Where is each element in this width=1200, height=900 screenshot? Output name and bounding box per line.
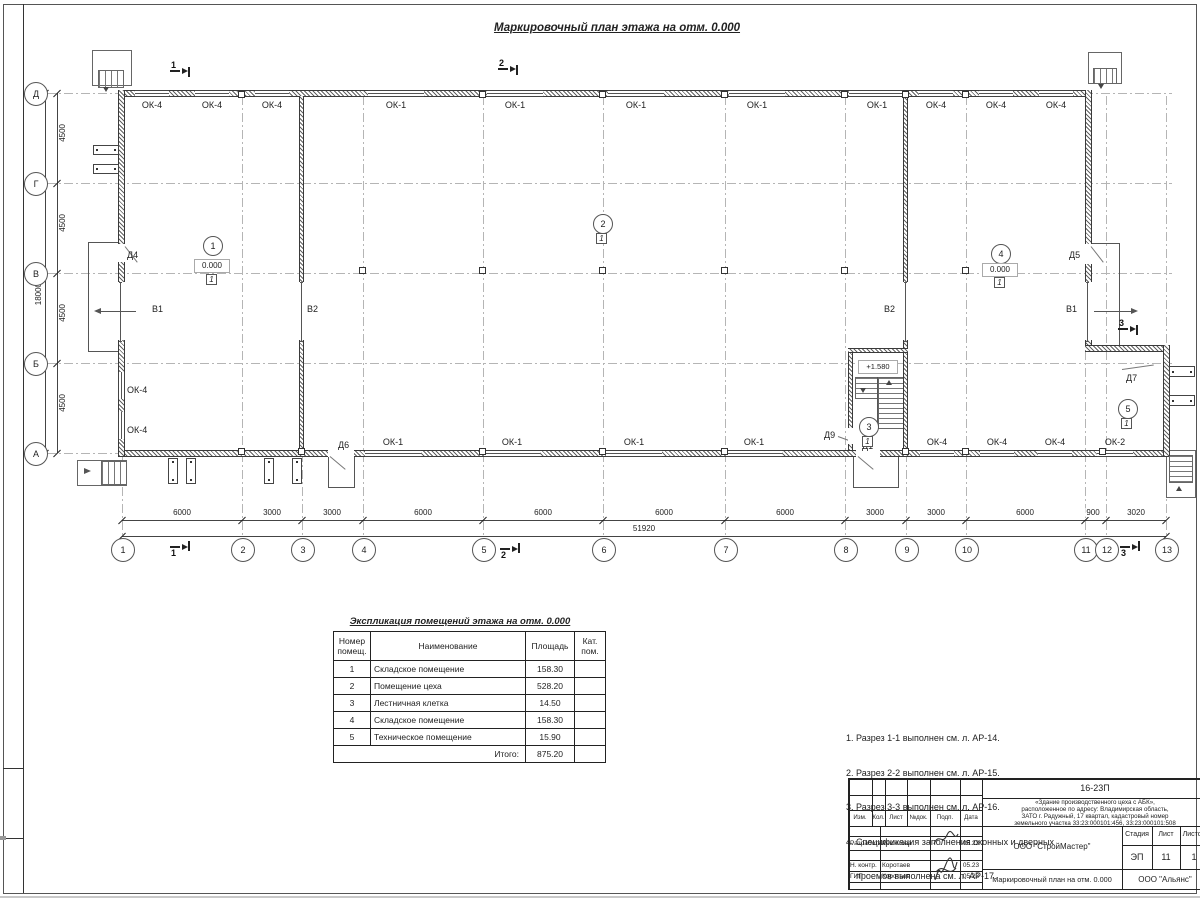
total-label: Итого: [334,746,526,763]
door-label: Д4 [127,250,138,260]
room-number-bubble: 4 [991,244,1011,264]
floor-type-box: 1 [1121,418,1132,429]
dimension: 4500 [58,304,67,322]
grid-line [603,96,604,538]
cell-category [575,712,606,729]
grid-line [47,183,1172,184]
door-label: Д9 [824,430,835,440]
window-label: ОК-2 [1105,437,1125,447]
column-marker [479,91,486,98]
dimension: 3000 [926,508,946,517]
room-number-bubble: 3 [859,417,879,437]
window-label: ОК-4 [262,100,282,110]
note-line: 1. Разрез 1-1 выполнен см. л. АР-14. [846,733,1054,745]
window-label: ОК-1 [747,100,767,110]
window [919,90,953,97]
column-marker [479,267,486,274]
axis-row-bubble: Д [24,82,48,106]
column-marker [479,448,486,455]
window [1039,90,1073,97]
cell-category [575,661,606,678]
signature [932,856,960,886]
cell-name: Лестничная клетка [371,695,526,712]
sheets-value: 1 [1180,852,1200,862]
dimension: 6000 [1015,508,1035,517]
column-marker [298,448,305,455]
total-value: 875.20 [526,746,575,763]
gate-leaf [300,282,303,342]
cell-area: 158.30 [526,661,575,678]
contractor-name: ООО "Альянс" [1122,875,1200,884]
room-elevation: 0.000 [194,259,230,273]
cell-area: 158.30 [526,712,575,729]
axis-col-bubble: 9 [895,538,919,562]
dimension: 3020 [1126,508,1146,517]
sheets-label: Листов [1180,831,1200,838]
tb-header-cell: Кол. [872,814,885,821]
door-opening [328,450,354,457]
tb-header-cell: Подп. [930,814,960,821]
cell-category [575,678,606,695]
axis-col-bubble: 6 [592,538,616,562]
doc-number: 16-23П [982,783,1200,793]
frame-tick [3,768,23,769]
window [849,90,903,97]
grid-line [725,96,726,538]
cell-category [575,746,606,763]
axis-col-bubble: 13 [1155,538,1179,562]
role-label: ГИП [850,873,863,880]
window [118,372,125,399]
window [487,90,543,97]
floor-type-box: 1 [994,277,1005,288]
gate-label: В1 [1066,304,1077,314]
window-label: ОК-1 [744,437,764,447]
project-desc-line: «Здание производственного цеха с АБК», [982,799,1200,806]
schedule-title: Экспликация помещений этажа на отм. 0.00… [333,616,587,627]
tb-header-cell: Дата [960,814,982,821]
stage-label: Стадия [1122,831,1152,838]
grid-line [242,96,243,538]
window-label: ОК-4 [987,437,1007,447]
column-marker [962,91,969,98]
axis-col-bubble: 5 [472,538,496,562]
interior-wall [299,96,304,450]
gate-direction-arrow [100,311,136,312]
axis-row-bubble: А [24,442,48,466]
table-row: 1Складское помещение158.30 [334,661,606,678]
column-marker [841,91,848,98]
dimension: 6000 [654,508,674,517]
axis-row-bubble: Г [24,172,48,196]
axis-row-bubble: Б [24,352,48,376]
window-label: ОК-1 [624,437,644,447]
stair-treads [1169,455,1193,483]
person-name: Коротаев [882,873,910,880]
wall [118,90,125,456]
schedule-table: Номер помещ. Наименование Площадь Кат. п… [333,631,606,763]
gate-leaf [904,282,907,342]
grid-line [845,96,846,538]
window-label: ОК-4 [127,425,147,435]
cell-area: 528.20 [526,678,575,695]
wall-bumper [1169,395,1195,406]
date-value: 05.23 [960,873,982,880]
column-marker [599,91,606,98]
cell-number: 5 [334,729,371,746]
stair-arrow-icon [84,468,91,474]
table-row: 2Помещение цеха528.20 [334,678,606,695]
window [606,450,662,457]
frame-tick [3,838,23,839]
dimension: 3000 [262,508,282,517]
window-label: ОК-4 [927,437,947,447]
column-marker [599,448,606,455]
section-mark: 2 [498,58,508,70]
room-number-bubble: 5 [1118,399,1138,419]
cell-number: 1 [334,661,371,678]
window [920,450,954,457]
role-label: Разработал [850,840,885,847]
window-label: ОК-4 [202,100,222,110]
drawing-sheet: Маркировочный план этажа на отм. 0.000 О… [0,0,1200,900]
col-header-name: Наименование [371,632,526,661]
room-number-bubble: 1 [203,236,223,256]
dimension: 3000 [865,508,885,517]
axis-col-bubble: 8 [834,538,858,562]
dimension: 900 [1085,508,1100,517]
tb-header-cell: Изм. [848,814,872,821]
room-schedule: Экспликация помещений этажа на отм. 0.00… [333,616,606,763]
window-label: ОК-4 [142,100,162,110]
wall-bumper [93,145,119,155]
window [135,90,169,97]
gate-direction-arrow [1094,311,1132,312]
window-label: ОК-4 [127,385,147,395]
axis-col-bubble: 4 [352,538,376,562]
page-title: Маркировочный план этажа на отм. 0.000 [494,22,740,34]
gate-label: В2 [307,304,318,314]
dimension: 6000 [172,508,192,517]
col-header-category: Кат. пом. [575,632,606,661]
column-marker [841,267,848,274]
column-marker [962,448,969,455]
window-label: ОК-1 [502,437,522,447]
stair-treads [1093,68,1117,84]
dimension: 4500 [58,214,67,232]
stair-treads [101,461,127,485]
axis-col-bubble: 10 [955,538,979,562]
door-label: Д5 [1069,250,1080,260]
window [979,90,1013,97]
date-value: 05.23 [960,862,982,869]
gate-leaf [119,282,122,342]
gate-label: В2 [884,304,895,314]
signature [932,830,960,848]
drawing-name: Маркировочный план на отм. 0.000 [982,875,1122,884]
dimension-total: 18000 [34,283,43,305]
flight-divider [877,377,878,427]
column-marker [238,448,245,455]
grid-line [47,363,1172,364]
window-label: ОК-1 [505,100,525,110]
dimension: 4500 [58,124,67,142]
section-mark: 1 [170,546,180,558]
axis-col-bubble: 3 [291,538,315,562]
date-value: 05.23 [960,840,982,847]
dock-outline [1091,243,1120,347]
vestibule-outline [328,457,355,488]
stair-arrow-icon [103,87,109,92]
section-mark: 1 [170,60,180,72]
column-marker [599,267,606,274]
gate-leaf [1086,282,1089,342]
dimension-total: 51920 [632,524,656,533]
sheet-value: 11 [1152,852,1180,862]
grid-line [483,96,484,538]
cell-name: Техническое помещение [371,729,526,746]
stair-arrow-icon [1176,486,1182,491]
window-label: ОК-4 [1046,100,1066,110]
section-mark: 3 [1120,546,1130,558]
cell-category [575,695,606,712]
project-desc-line: расположенное по адресу: Владимирская об… [982,806,1200,813]
window [1038,450,1072,457]
dimension: 4500 [58,394,67,412]
window-label: ОК-1 [867,100,887,110]
window-label: ОК-4 [986,100,1006,110]
column-marker [902,448,909,455]
floor-type-box: 1 [862,436,873,447]
cell-name: Складское помещение [371,712,526,729]
stair-arrow-icon [1098,84,1104,89]
cell-area: 15.90 [526,729,575,746]
project-desc-line: ЗАТО г. Радужный, 17 квартал, кадастровы… [982,813,1200,820]
canopy-post [292,458,302,484]
cell-name: Помещение цеха [371,678,526,695]
canopy-post [168,458,178,484]
window-label: ОК-1 [386,100,406,110]
wall [1085,345,1169,352]
frame-edge-mark [0,836,6,840]
frame-inner-line [23,4,24,893]
window-label: ОК-4 [926,100,946,110]
cell-category [575,729,606,746]
room-number-bubble: 2 [593,214,613,234]
canopy-post [264,458,274,484]
table-row: 5Техническое помещение15.90 [334,729,606,746]
window-label: ОК-4 [1045,437,1065,447]
person-name: Решетова [882,840,912,847]
window [980,450,1014,457]
column-marker [902,91,909,98]
stair-treads [98,70,124,88]
dimension: 6000 [775,508,795,517]
axis-row-bubble: В [24,262,48,286]
org-name: ООО "СтройМастер" [982,842,1122,851]
cell-number: 2 [334,678,371,695]
cell-name: Складское помещение [371,661,526,678]
project-desc-line: земельного участка 33:23:000101:456, 33:… [982,820,1200,827]
window [118,412,125,439]
window [726,450,782,457]
dimension-line [122,536,1166,537]
column-marker [721,91,728,98]
column-marker [962,267,969,274]
column-marker [238,91,245,98]
landing-elevation: +1.580 [858,360,898,374]
stairwell-wall [903,348,908,450]
window [368,90,424,97]
door-label: Д7 [1126,373,1137,383]
window [195,90,229,97]
column-marker [1099,448,1106,455]
gate-label: В1 [152,304,163,314]
dimension: 6000 [413,508,433,517]
floor-type-box: 1 [596,233,607,244]
sheet-label: Лист [1152,831,1180,838]
dimension-line [122,520,1166,521]
dock-outline [88,242,119,352]
stairwell-wall [848,348,908,353]
column-marker [721,267,728,274]
grid-line [966,96,967,538]
arrowhead-icon [94,308,101,314]
door-opening [856,450,880,457]
stage-value: ЭП [1122,852,1152,862]
person-name: Коротаев [882,862,910,869]
canopy-post [186,458,196,484]
window-label: ОК-1 [626,100,646,110]
tb-header-cell: №док. [907,814,930,821]
axis-col-bubble: 1 [111,538,135,562]
stair-arrow-icon [860,388,866,393]
col-header-number: Номер помещ. [334,632,371,661]
vestibule-outline [853,457,899,488]
window [608,90,664,97]
stair-flight [855,377,879,399]
door-opening [848,428,853,444]
window [484,450,540,457]
arrowhead-icon [1131,308,1138,314]
cell-area: 14.50 [526,695,575,712]
table-row: 3Лестничная клетка14.50 [334,695,606,712]
table-row: 4Складское помещение158.30 [334,712,606,729]
dimension: 3000 [322,508,342,517]
window-label: ОК-1 [383,437,403,447]
room-elevation: 0.000 [982,263,1018,277]
section-mark: 2 [500,548,510,560]
stair-arrow-icon [886,380,892,385]
floor-type-box: 1 [206,274,217,285]
door-label: Д6 [338,440,349,450]
window [255,90,289,97]
column-marker [359,267,366,274]
table-total-row: Итого:875.20 [334,746,606,763]
grid-line [363,96,364,538]
role-label: Н. контр. [850,862,877,869]
cell-number: 4 [334,712,371,729]
axis-col-bubble: 2 [231,538,255,562]
window [365,450,421,457]
axis-col-bubble: 7 [714,538,738,562]
col-header-area: Площадь [526,632,575,661]
cell-number: 3 [334,695,371,712]
title-block: 16-23П «Здание производственного цеха с … [848,778,1200,890]
tb-header-cell: Лист [885,814,907,821]
dimension: 6000 [533,508,553,517]
section-mark: 3 [1118,318,1128,330]
window [729,90,785,97]
axis-col-bubble: 12 [1095,538,1119,562]
wall-bumper [1169,366,1195,377]
wall-bumper [93,164,119,174]
column-marker [721,448,728,455]
